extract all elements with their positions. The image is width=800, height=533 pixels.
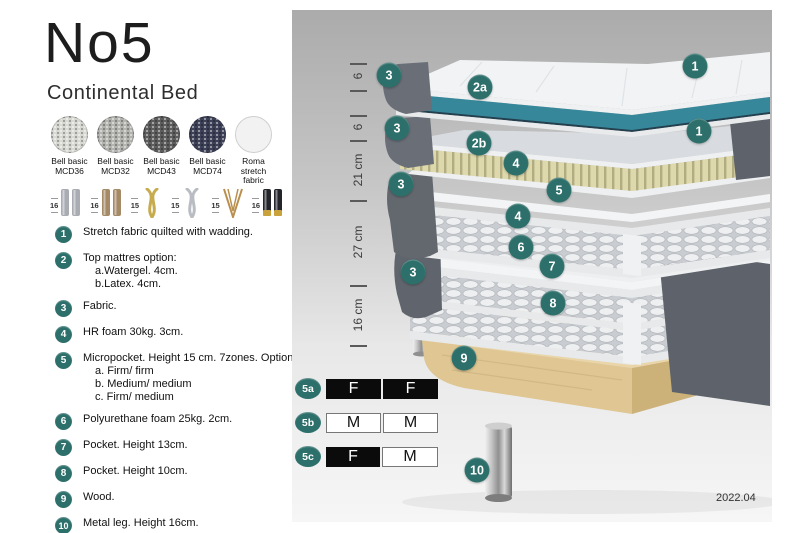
legend-text: Pocket. Height 10cm. bbox=[83, 465, 188, 482]
swatch-circle bbox=[51, 116, 88, 153]
legend-number-badge: 10 bbox=[55, 517, 72, 533]
leg-icon bbox=[140, 188, 164, 223]
measurement-label: 27 cm bbox=[351, 226, 365, 259]
legend-item: 1Stretch fabric quilted with wadding. bbox=[55, 226, 305, 243]
measurement-label: 6 bbox=[351, 73, 365, 80]
legend-number-badge: 2 bbox=[55, 252, 72, 269]
size-table-row: 5bMM bbox=[295, 412, 438, 433]
tick-mark bbox=[212, 198, 219, 199]
legend-number-badge: 9 bbox=[55, 491, 72, 508]
legend-subline: a. Firm/ firm bbox=[83, 365, 296, 378]
legend-line: Polyurethane foam 25kg. 2cm. bbox=[83, 413, 232, 426]
measurement-tick bbox=[350, 345, 367, 347]
legend-line: Pocket. Height 13cm. bbox=[83, 439, 188, 452]
leg-size: 16 bbox=[90, 196, 98, 215]
swatch-circle bbox=[235, 116, 272, 153]
legend-list: 1Stretch fabric quilted with wadding.2To… bbox=[55, 226, 305, 533]
legend-number-badge: 6 bbox=[55, 413, 72, 430]
measurement-label: 6 bbox=[351, 124, 365, 131]
legend-text: Wood. bbox=[83, 491, 115, 508]
leg-size: 15 bbox=[131, 196, 139, 215]
legend-number-badge: 3 bbox=[55, 300, 72, 317]
callout-1: 1 bbox=[683, 54, 708, 79]
callout-2b: 2b bbox=[467, 131, 492, 156]
measurement-tick bbox=[350, 115, 367, 117]
measurement-label: 21 cm bbox=[351, 154, 365, 187]
metal-leg-front bbox=[485, 423, 512, 503]
tick-mark bbox=[212, 212, 219, 213]
leg-option: 16 bbox=[252, 188, 285, 223]
tick-mark bbox=[172, 198, 179, 199]
diagram-panel: 6621 cm27 cm16 cm 132a312b43546738910 5a… bbox=[292, 10, 772, 522]
size-table-row: 5aFF bbox=[295, 378, 438, 399]
leg-icon bbox=[100, 188, 124, 223]
legend-subline: a.Watergel. 4cm. bbox=[83, 265, 178, 278]
legend-number-badge: 4 bbox=[55, 326, 72, 343]
size-cell: M bbox=[382, 447, 438, 467]
tick-mark bbox=[51, 198, 58, 199]
measurement-tick bbox=[350, 140, 367, 142]
size-row-cells: FM bbox=[326, 447, 438, 467]
size-table-row: 5cFM bbox=[295, 446, 438, 467]
legend-text: HR foam 30kg. 3cm. bbox=[83, 326, 183, 343]
legend-line: Pocket. Height 10cm. bbox=[83, 465, 188, 478]
legend-text: Polyurethane foam 25kg. 2cm. bbox=[83, 413, 232, 430]
tick-mark bbox=[131, 212, 138, 213]
swatch-circle bbox=[97, 116, 134, 153]
swatch-label: Bell basicMCD74 bbox=[189, 157, 225, 176]
legend-text: Pocket. Height 13cm. bbox=[83, 439, 188, 456]
top-mattress-layer bbox=[383, 52, 770, 137]
leg-icon bbox=[221, 188, 245, 223]
product-title: No5 bbox=[44, 10, 155, 76]
callout-4: 4 bbox=[504, 151, 529, 176]
legend-text: Micropocket. Height 15 cm. 7zones. Optio… bbox=[83, 352, 296, 404]
version-label: 2022.04 bbox=[716, 492, 756, 504]
fabric-swatches: Bell basicMCD36Bell basicMCD32Bell basic… bbox=[49, 116, 274, 186]
legend-text: Metal leg. Height 16cm. bbox=[83, 517, 199, 533]
tick-mark bbox=[91, 212, 98, 213]
size-row-cells: MM bbox=[326, 413, 438, 433]
leg-option: 15 bbox=[131, 188, 164, 223]
size-cell: M bbox=[326, 413, 381, 433]
legend-line: Wood. bbox=[83, 491, 115, 504]
size-cell: F bbox=[326, 447, 380, 467]
legend-number-badge: 5 bbox=[55, 352, 72, 369]
tick-mark bbox=[131, 198, 138, 199]
legend-line: Fabric. bbox=[83, 300, 117, 313]
measurement-tick bbox=[350, 90, 367, 92]
callout-9: 9 bbox=[452, 346, 477, 371]
callout-4: 4 bbox=[506, 204, 531, 229]
callout-8: 8 bbox=[541, 291, 566, 316]
callout-3: 3 bbox=[377, 63, 402, 88]
fabric-swatch: Romastretch fabric bbox=[233, 116, 274, 186]
callout-2a: 2a bbox=[468, 75, 493, 100]
legend-item: 8Pocket. Height 10cm. bbox=[55, 465, 305, 482]
page: No5 Continental Bed Bell basicMCD36Bell … bbox=[0, 0, 800, 533]
tick-mark bbox=[91, 198, 98, 199]
leg-size: 16 bbox=[50, 196, 58, 215]
legend-subline: c. Firm/ medium bbox=[83, 391, 296, 404]
size-cell: F bbox=[383, 379, 438, 399]
callout-7: 7 bbox=[540, 254, 565, 279]
leg-option: 15 bbox=[211, 188, 244, 223]
fabric-swatch: Bell basicMCD32 bbox=[95, 116, 136, 186]
callout-10: 10 bbox=[465, 458, 490, 483]
legend-item: 10Metal leg. Height 16cm. bbox=[55, 517, 305, 533]
tick-mark bbox=[51, 212, 58, 213]
callout-5: 5 bbox=[547, 178, 572, 203]
legend-item: 2Top mattres option:a.Watergel. 4cm.b.La… bbox=[55, 252, 305, 291]
legend-line: Micropocket. Height 15 cm. 7zones. Optio… bbox=[83, 352, 296, 365]
size-cell: M bbox=[383, 413, 438, 433]
legend-item: 4HR foam 30kg. 3cm. bbox=[55, 326, 305, 343]
legend-number-badge: 1 bbox=[55, 226, 72, 243]
legend-text: Stretch fabric quilted with wadding. bbox=[83, 226, 253, 243]
fabric-swatch: Bell basicMCD36 bbox=[49, 116, 90, 186]
swatch-label: Bell basicMCD32 bbox=[97, 157, 133, 176]
swatch-circle bbox=[189, 116, 226, 153]
measurement-tick bbox=[350, 285, 367, 287]
tick-mark bbox=[252, 198, 259, 199]
legend-line: Metal leg. Height 16cm. bbox=[83, 517, 199, 530]
legend-line: HR foam 30kg. 3cm. bbox=[83, 326, 183, 339]
legend-text: Fabric. bbox=[83, 300, 117, 317]
product-subtitle: Continental Bed bbox=[47, 82, 198, 105]
measurement-label: 16 cm bbox=[351, 299, 365, 332]
legend-line: Top mattres option: bbox=[83, 252, 178, 265]
callout-6: 6 bbox=[509, 235, 534, 260]
leg-icon bbox=[180, 188, 204, 223]
leg-icon bbox=[59, 188, 83, 223]
leg-option: 15 bbox=[171, 188, 204, 223]
swatch-circle bbox=[143, 116, 180, 153]
size-row-badge: 5c bbox=[295, 446, 321, 467]
fabric-swatch: Bell basicMCD74 bbox=[187, 116, 228, 186]
callout-1: 1 bbox=[687, 119, 712, 144]
swatch-label: Bell basicMCD36 bbox=[51, 157, 87, 176]
swatch-label: Bell basicMCD43 bbox=[143, 157, 179, 176]
size-row-cells: FF bbox=[326, 379, 438, 399]
swatch-label: Romastretch fabric bbox=[233, 157, 274, 186]
size-row-badge: 5a bbox=[295, 378, 321, 399]
leg-size: 16 bbox=[252, 196, 260, 215]
legend-line: Stretch fabric quilted with wadding. bbox=[83, 226, 253, 239]
legend-subline: b. Medium/ medium bbox=[83, 378, 296, 391]
leg-options: 161615151516 bbox=[50, 188, 285, 223]
fabric-swatch: Bell basicMCD43 bbox=[141, 116, 182, 186]
legend-item: 6Polyurethane foam 25kg. 2cm. bbox=[55, 413, 305, 430]
measurement-tick bbox=[350, 63, 367, 65]
leg-icon bbox=[261, 188, 285, 223]
legend-number-badge: 8 bbox=[55, 465, 72, 482]
size-row-badge: 5b bbox=[295, 412, 321, 433]
size-cell: F bbox=[326, 379, 381, 399]
callout-3: 3 bbox=[401, 260, 426, 285]
leg-option: 16 bbox=[50, 188, 83, 223]
callout-3: 3 bbox=[385, 116, 410, 141]
legend-text: Top mattres option:a.Watergel. 4cm.b.Lat… bbox=[83, 252, 178, 291]
legend-subline: b.Latex. 4cm. bbox=[83, 278, 178, 291]
leg-size: 15 bbox=[171, 196, 179, 215]
tick-mark bbox=[172, 212, 179, 213]
legend-item: 9Wood. bbox=[55, 491, 305, 508]
legend-item: 7Pocket. Height 13cm. bbox=[55, 439, 305, 456]
legend-number-badge: 7 bbox=[55, 439, 72, 456]
legend-item: 3Fabric. bbox=[55, 300, 305, 317]
callout-3: 3 bbox=[389, 172, 414, 197]
leg-option: 16 bbox=[90, 188, 123, 223]
measurement-tick bbox=[350, 200, 367, 202]
legend-item: 5Micropocket. Height 15 cm. 7zones. Opti… bbox=[55, 352, 305, 404]
leg-size: 15 bbox=[211, 196, 219, 215]
tick-mark bbox=[252, 212, 259, 213]
